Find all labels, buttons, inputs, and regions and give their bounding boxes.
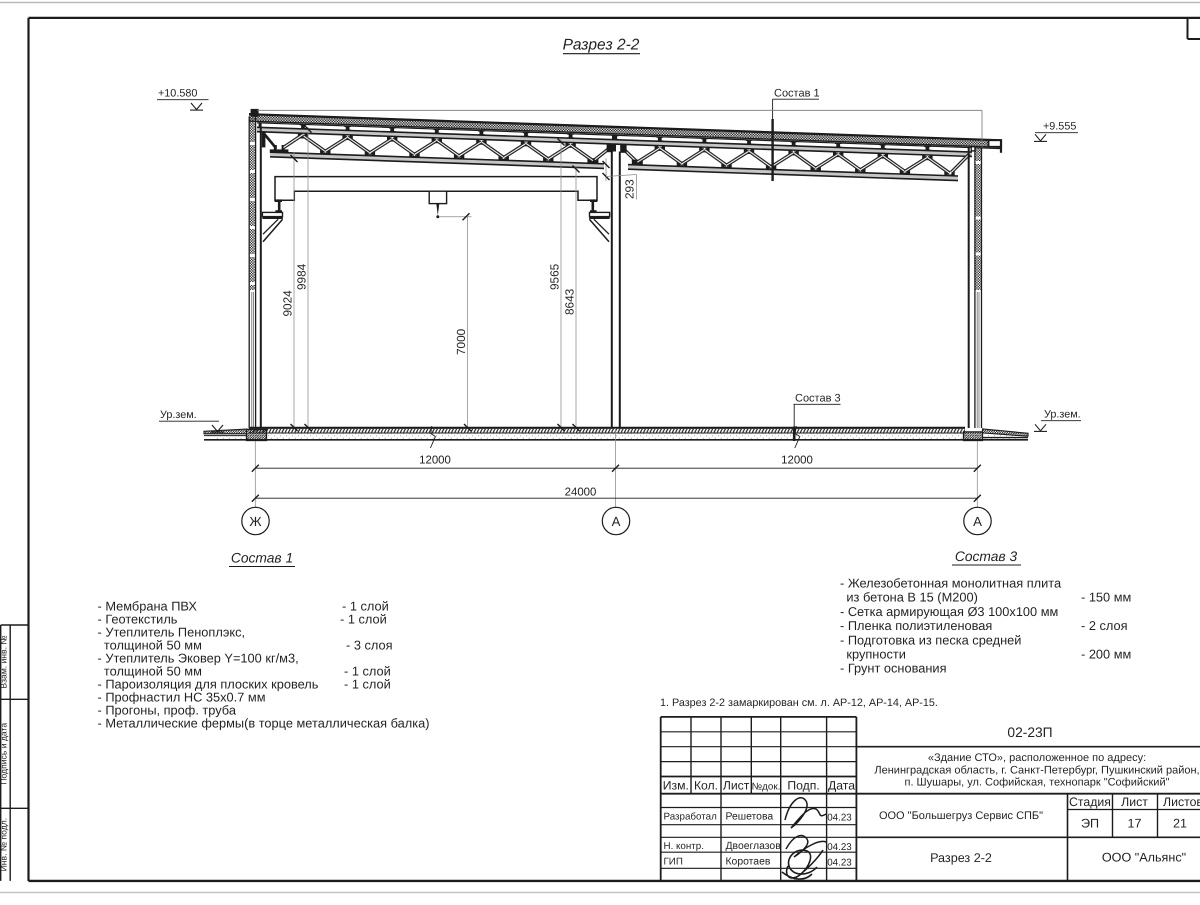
svg-text:ЭП: ЭП: [1081, 817, 1099, 831]
svg-text:из бетона В 15 (М200): из бетона В 15 (М200): [840, 590, 978, 605]
svg-text:+9.555: +9.555: [1043, 121, 1076, 133]
svg-text:+10.580: +10.580: [158, 88, 197, 100]
svg-text:9024: 9024: [281, 290, 295, 317]
svg-text:1. Разрез 2-2 замаркирован см.: 1. Разрез 2-2 замаркирован см. л. АР-12,…: [660, 697, 938, 709]
svg-text:Листов: Листов: [1163, 795, 1200, 809]
svg-text:- 150 мм: - 150 мм: [1081, 590, 1131, 605]
svg-text:Решетова: Решетова: [726, 812, 774, 823]
svg-text:Ленинградская область, г. Санк: Ленинградская область, г. Санкт-Петербур…: [874, 765, 1199, 777]
svg-text:Коротаев: Коротаев: [726, 857, 771, 868]
svg-text:02-23П: 02-23П: [1007, 725, 1052, 740]
svg-text:Разрез 2-2: Разрез 2-2: [930, 851, 992, 865]
svg-text:№док.: №док.: [752, 782, 781, 793]
svg-text:Ур.зем.: Ур.зем.: [1044, 409, 1081, 421]
svg-text:- Железобетонная монолитная п: - Железобетонная монолитная плита: [840, 576, 1062, 591]
svg-text:Инв. № подл.: Инв. № подл.: [0, 818, 9, 872]
svg-text:ГИП: ГИП: [664, 857, 683, 868]
svg-text:9565: 9565: [548, 263, 562, 290]
svg-text:293: 293: [623, 179, 637, 199]
svg-text:Разрез 2-2: Разрез 2-2: [563, 37, 640, 54]
svg-text:- Пленка полиэтиленовая: - Пленка полиэтиленовая: [840, 618, 992, 633]
svg-text:12000: 12000: [419, 454, 451, 466]
svg-text:17: 17: [1127, 817, 1141, 831]
svg-text:8643: 8643: [563, 288, 577, 315]
svg-text:- 2 слоя: - 2 слоя: [1081, 618, 1128, 633]
svg-text:«Здание СТО», расположенное по: «Здание СТО», расположенное по адресу:: [928, 752, 1146, 764]
svg-text:9984: 9984: [295, 263, 309, 290]
svg-text:Лист: Лист: [1121, 795, 1148, 809]
svg-text:Ур.зем.: Ур.зем.: [160, 409, 197, 421]
svg-text:- 3 слоя: - 3 слоя: [346, 638, 393, 653]
svg-text:- Подготовка из песка средней: - Подготовка из песка средней: [840, 632, 1021, 647]
svg-text:А: А: [612, 514, 621, 529]
svg-text:- 1 слой: - 1 слой: [344, 677, 391, 692]
svg-text:Н. контр.: Н. контр.: [664, 841, 704, 852]
svg-text:- Сетка армирующая Ø3 100х100: - Сетка армирующая Ø3 100х100 мм: [840, 604, 1058, 619]
svg-text:04.23: 04.23: [827, 857, 852, 868]
svg-text:Ж: Ж: [249, 514, 261, 529]
svg-text:Подп.: Подп.: [787, 778, 819, 792]
svg-text:24000: 24000: [565, 486, 597, 498]
svg-text:7000: 7000: [454, 328, 468, 355]
svg-text:Разработал: Разработал: [664, 812, 718, 823]
svg-text:- Металлические фермы(в торце: - Металлические фермы(в торце металличес…: [98, 716, 430, 731]
svg-text:04.23: 04.23: [827, 842, 852, 853]
svg-text:п. Шушары, ул. Софийская, техн: п. Шушары, ул. Софийская, технопарк "Соф…: [904, 777, 1169, 789]
svg-text:Стадия: Стадия: [1069, 795, 1111, 809]
svg-text:А: А: [973, 514, 982, 529]
svg-text:Лист: Лист: [723, 778, 750, 792]
svg-text:- Грунт основания: - Грунт основания: [840, 661, 947, 676]
svg-text:04.23: 04.23: [827, 813, 852, 824]
svg-text:Двоеглазов: Двоеглазов: [726, 841, 782, 852]
svg-text:Кол.: Кол.: [694, 778, 718, 792]
svg-text:ООО "Альянс": ООО "Альянс": [1102, 851, 1186, 865]
svg-text:Состав 1: Состав 1: [231, 551, 293, 566]
svg-text:Дата: Дата: [828, 778, 855, 792]
svg-text:Состав 3: Состав 3: [795, 393, 841, 405]
svg-text:Состав 3: Состав 3: [955, 549, 1018, 564]
svg-text:Изм.: Изм.: [663, 778, 689, 792]
svg-text:- 1 слой: - 1 слой: [340, 612, 387, 627]
svg-text:Взам. инв. №: Взам. инв. №: [0, 635, 9, 688]
svg-text:крупности: крупности: [840, 647, 906, 662]
svg-text:Подпись и дата: Подпись и дата: [0, 723, 9, 785]
svg-text:- 200 мм: - 200 мм: [1081, 647, 1131, 662]
svg-text:ООО "Большегруз Сервис СПБ": ООО "Большегруз Сервис СПБ": [879, 810, 1043, 822]
svg-text:12000: 12000: [781, 454, 813, 466]
svg-text:Состав 1: Состав 1: [774, 88, 820, 100]
svg-text:21: 21: [1173, 817, 1187, 831]
